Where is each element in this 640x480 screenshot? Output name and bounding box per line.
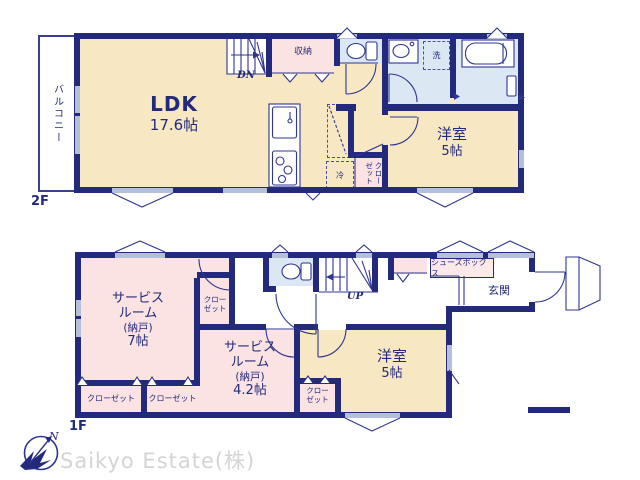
service42-label: サービス ルーム (納戸) 4.2帖: [205, 340, 295, 398]
shoebox-cabinet: シューズボックス: [430, 258, 494, 278]
watermark-text: Saikyo Estate(株): [60, 445, 255, 475]
closet-b-label: クローゼット: [145, 394, 200, 403]
window-segment: [75, 116, 80, 154]
window-segment: [115, 253, 165, 258]
western-2f-name: 洋室: [412, 126, 492, 144]
floor-1f-title: 1F: [69, 419, 99, 434]
service7-line1: サービス: [93, 291, 183, 306]
wall-segment: [450, 39, 456, 98]
wall-segment-detached: [528, 407, 570, 413]
stairs-up-label: UP: [342, 291, 368, 303]
entrance-porch: [566, 257, 600, 310]
wall-segment: [313, 258, 319, 292]
wall-segment: [334, 39, 340, 66]
compass-north-label: N: [48, 430, 59, 443]
entrance-label: 玄関: [479, 285, 519, 298]
room-stairwell-2f: [227, 39, 266, 74]
wall-segment: [197, 272, 235, 278]
wall-segment: [372, 258, 378, 292]
stairs-dn-label: DN: [233, 70, 259, 82]
wall-segment: [446, 306, 535, 312]
floorplan-canvas: バルコニー 冷 洗 LDK 17.6帖 洋室 5帖 収納 DN クロー: [0, 0, 640, 480]
closet-c-label: クロー ゼット: [198, 296, 232, 314]
wall-segment: [348, 111, 354, 158]
balcony-label: バルコニー: [50, 84, 65, 144]
western-2f-size: 5帖: [412, 144, 492, 159]
window-segment: [272, 253, 288, 258]
service42-line2: ルーム: [205, 355, 295, 370]
room-toilet-1f: [269, 258, 313, 286]
closet-2f-line1: クロー: [374, 160, 383, 186]
western-room-1f-label: 洋室 5帖: [352, 348, 432, 381]
wall-segment: [335, 378, 341, 418]
window-segment: [112, 188, 173, 193]
wall-segment: [346, 324, 446, 330]
wall-segment: [75, 380, 200, 386]
wall-segment: [194, 324, 266, 330]
window-segment: [345, 413, 400, 418]
wall-segment: [74, 33, 524, 39]
closet-2f-line2: ゼット: [364, 160, 373, 186]
fridge-label: 冷: [336, 170, 344, 181]
window-segment: [488, 253, 534, 258]
wall-segment: [388, 258, 394, 280]
ldk-size: 17.6帖: [129, 117, 219, 135]
window-segment: [76, 319, 81, 337]
wall-segment: [263, 286, 276, 292]
window-segment: [519, 150, 524, 168]
window-segment: [447, 345, 452, 371]
laundry-space-2f: 洗: [423, 41, 450, 70]
room-toilet-2f: [340, 39, 382, 63]
service7-line2: ルーム: [93, 306, 183, 321]
western-1f-size: 5帖: [352, 366, 432, 381]
western-room-2f-label: 洋室 5帖: [412, 126, 492, 159]
wall-segment: [266, 39, 272, 77]
window-segment: [223, 188, 267, 193]
closet-a-label: クローゼット: [81, 394, 141, 403]
wall-segment: [529, 258, 535, 272]
wall-segment: [518, 33, 524, 193]
closet-d-line2: ゼット: [301, 396, 334, 405]
wall-segment: [382, 104, 518, 111]
wall-segment: [348, 152, 385, 158]
ldk-label: LDK 17.6帖: [129, 93, 219, 134]
window-segment: [337, 34, 357, 39]
window-segment: [417, 188, 473, 193]
ldk-name: LDK: [129, 93, 219, 117]
service42-line1: サービス: [205, 340, 295, 355]
service7-label: サービス ルーム (納戸) 7帖: [93, 291, 183, 349]
window-segment: [76, 300, 81, 316]
laundry-label: 洗: [433, 50, 441, 61]
closet-2f-label: クロー ゼット: [358, 160, 383, 186]
window-segment: [75, 86, 80, 113]
compass: N: [20, 430, 59, 470]
window-segment: [437, 253, 483, 258]
compass-needle-icon: [20, 449, 51, 470]
wall-segment: [336, 104, 356, 111]
counter-dashed-2f: [327, 104, 350, 158]
service7-size: 7帖: [93, 334, 183, 349]
floor-2f-title: 2F: [31, 194, 61, 209]
room-bathroom-2f: [456, 39, 518, 104]
fridge-space-2f: 冷: [326, 161, 354, 189]
stairs-1f: [319, 258, 378, 292]
shoebox-label: シューズボックス: [431, 257, 493, 279]
service7-line3: (納戸): [93, 322, 183, 334]
balcony-2f: バルコニー: [38, 35, 76, 192]
window-segment: [356, 253, 372, 258]
closet-d-label: クロー ゼット: [301, 387, 334, 405]
western-1f-name: 洋室: [352, 348, 432, 366]
wall-segment: [74, 33, 80, 193]
service42-line3: (納戸): [205, 371, 295, 383]
room-storage-1f: [394, 258, 427, 274]
wall-segment: [229, 258, 235, 330]
wall-segment: [194, 278, 200, 386]
storage-2f-label: 収納: [273, 47, 333, 58]
service42-size: 4.2帖: [205, 383, 295, 398]
closet-c-line2: ゼット: [198, 305, 232, 314]
window-segment: [487, 34, 507, 39]
